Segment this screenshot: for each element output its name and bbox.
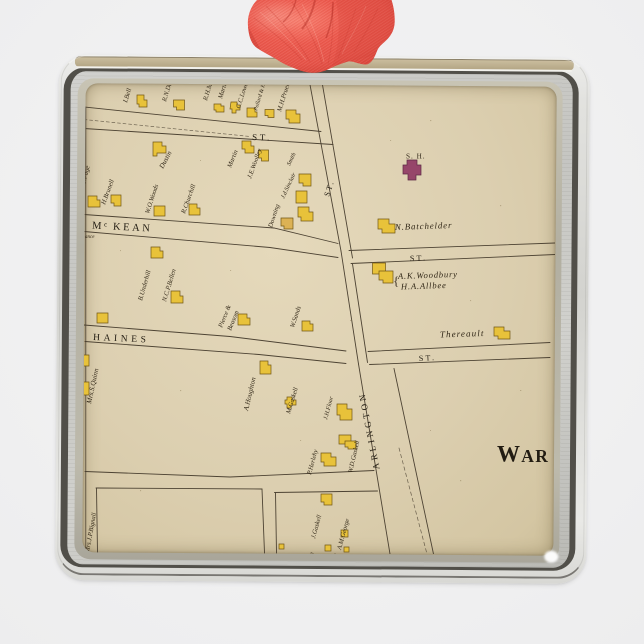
svg-text:R.N.Daly: R.N.Daly: [161, 85, 175, 104]
svg-text:J.Gaskell: J.Gaskell: [310, 514, 323, 540]
svg-text:W.Sands: W.Sands: [289, 305, 303, 329]
svg-text:I.Bell: I.Bell: [122, 88, 133, 105]
svg-text:ST.: ST.: [322, 179, 336, 198]
svg-text:ARLINGTON: ARLINGTON: [357, 391, 382, 471]
svg-text:Downing: Downing: [267, 203, 282, 230]
svg-text:McKEAN: McKEAN: [92, 220, 153, 235]
svg-text:ance: ance: [85, 235, 95, 240]
svg-text:ST.: ST.: [252, 132, 272, 143]
svg-text:3: 3: [309, 551, 315, 554]
svg-text:HAINES: HAINES: [93, 333, 150, 345]
svg-text:C.C.Lowe: C.C.Lowe: [235, 85, 249, 110]
svg-text:M.H.Pruell: M.H.Pruell: [276, 85, 292, 114]
svg-text:A.Houghton: A.Houghton: [242, 376, 258, 412]
svg-text:N.Batchelder: N.Batchelder: [394, 220, 453, 232]
svg-text:A.K.Woodbury: A.K.Woodbury: [397, 269, 458, 281]
svg-text:Martin: Martin: [217, 85, 230, 101]
svg-text:P.Herlehy: P.Herlehy: [306, 449, 320, 477]
svg-text:J.H.Flour: J.H.Flour: [323, 395, 335, 420]
svg-text:Thereault: Thereault: [440, 328, 485, 340]
svg-text:R.H.Merrill: R.H.Merrill: [202, 85, 218, 103]
svg-text:B.Underhill: B.Underhill: [137, 269, 152, 301]
svg-text:J.d.Sinclair: J.d.Sinclair: [280, 172, 297, 200]
svg-text:Pollard & Hill: Pollard & Hill: [253, 85, 269, 113]
svg-text:ST.: ST.: [419, 353, 437, 363]
svg-text:Martin: Martin: [226, 148, 240, 169]
svg-text:Smith: Smith: [286, 152, 297, 167]
svg-text:S. H.: S. H.: [406, 153, 426, 161]
svg-text:ST.: ST.: [410, 253, 428, 263]
svg-text:A.M.George: A.M.George: [336, 518, 351, 552]
svg-text:H.A.Allbee: H.A.Allbee: [400, 280, 447, 292]
svg-text:a: a: [332, 552, 338, 554]
svg-text:F.Page: F.Page: [84, 165, 92, 186]
svg-text:WAR: WAR: [497, 442, 549, 467]
